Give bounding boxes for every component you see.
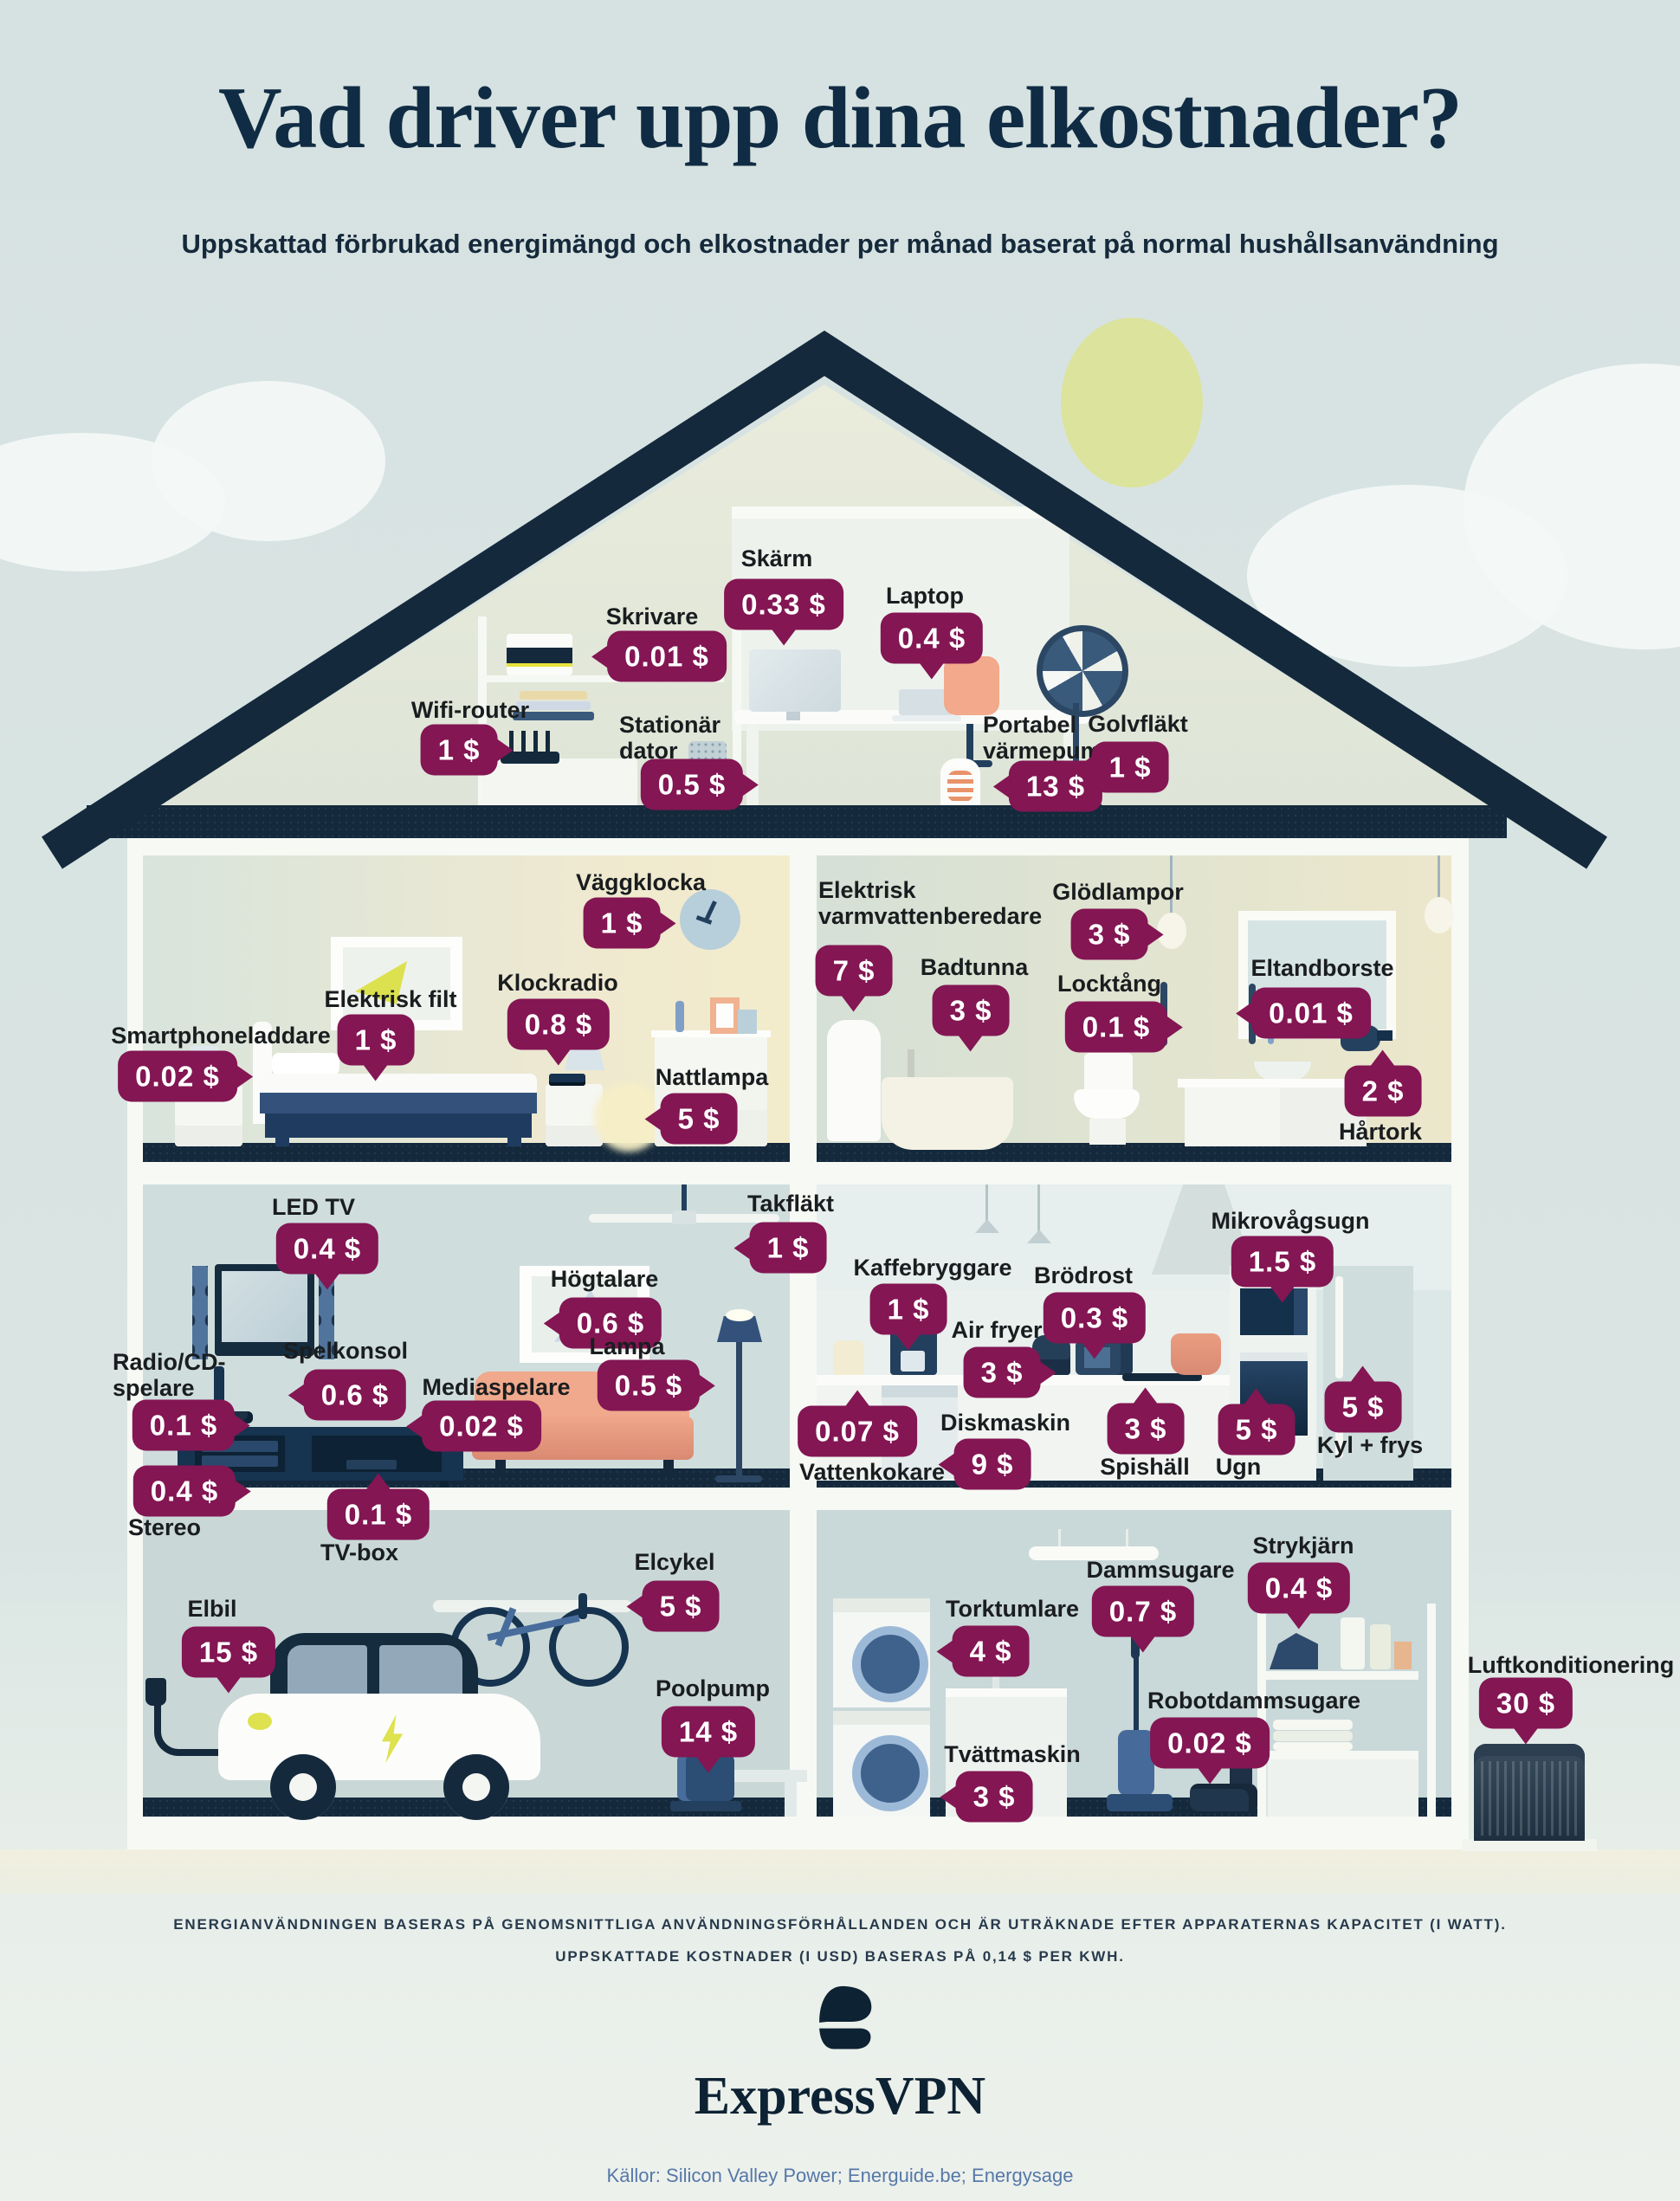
appliance-cost-badge-radio_cd_spelare: 0.1 $ xyxy=(132,1400,235,1451)
appliance-label-hogtalare: Högtalare xyxy=(551,1266,659,1292)
appliance-label-eltandborste: Eltandborste xyxy=(1250,955,1393,981)
sources-line: Källor: Silicon Valley Power; Energuide.… xyxy=(0,2165,1680,2187)
appliance-label-takflakt: Takfläkt xyxy=(747,1191,834,1217)
appliance-cost-badge-smartphoneladdare: 0.02 $ xyxy=(118,1051,237,1102)
appliance-cost-badge-laptop: 0.4 $ xyxy=(881,613,983,664)
appliance-cost-value: 3 $ xyxy=(950,995,992,1027)
appliance-label-stereo: Stereo xyxy=(128,1514,201,1540)
appliance-label-kaffebryggare: Kaffebryggare xyxy=(853,1255,1011,1281)
appliance-label-ugn: Ugn xyxy=(1216,1454,1261,1480)
appliance-label-diskmaskin: Diskmaskin xyxy=(940,1410,1070,1436)
appliance-cost-value: 0.6 $ xyxy=(321,1379,389,1411)
appliance-cost-badge-stereo: 0.4 $ xyxy=(133,1466,236,1517)
appliance-label-poolpump: Poolpump xyxy=(656,1675,770,1701)
appliance-label-led_tv: LED TV xyxy=(272,1194,355,1220)
appliance-cost-value: 1 $ xyxy=(355,1024,397,1056)
appliance-cost-badge-mikrovagsugn: 1.5 $ xyxy=(1231,1236,1334,1288)
badge-pointer xyxy=(591,644,609,668)
appliance-cost-value: 0.1 $ xyxy=(345,1499,412,1531)
badge-pointer xyxy=(645,1107,662,1131)
appliance-cost-value: 7 $ xyxy=(833,955,876,987)
appliance-cost-badge-tv_box: 0.1 $ xyxy=(327,1489,430,1540)
appliance-cost-value: 4 $ xyxy=(970,1636,1012,1668)
expressvpn-logo-icon xyxy=(798,1985,882,2059)
appliance-cost-value: 0.4 $ xyxy=(151,1475,218,1507)
appliance-cost-badge-diskmaskin: 9 $ xyxy=(954,1439,1031,1490)
appliance-cost-badge-poolpump: 14 $ xyxy=(662,1707,755,1758)
appliance-label-elektrisk_filt: Elektrisk filt xyxy=(324,986,456,1012)
appliance-label-skrivare: Skrivare xyxy=(606,603,699,629)
appliance-label-robotdammsugare: Robotdammsugare xyxy=(1147,1688,1360,1714)
badge-pointer xyxy=(544,1311,561,1335)
appliance-cost-badge-stationar_dator: 0.5 $ xyxy=(641,759,743,810)
badge-pointer xyxy=(919,662,945,680)
appliance-label-vattenkokare: Vattenkokare xyxy=(799,1459,945,1485)
badge-pointer xyxy=(1286,1612,1312,1630)
appliance-cost-value: 1 $ xyxy=(767,1232,810,1264)
appliance-cost-value: 0.4 $ xyxy=(294,1233,361,1265)
appliance-cost-value: 5 $ xyxy=(660,1591,702,1623)
appliance-cost-badge-robotdammsugare: 0.02 $ xyxy=(1150,1718,1270,1769)
appliance-cost-badge-spelkonsol: 0.6 $ xyxy=(304,1370,406,1421)
appliance-cost-value: 3 $ xyxy=(1125,1413,1167,1445)
appliance-label-golvflakt: Golvfläkt xyxy=(1088,711,1188,737)
appliance-cost-badge-skarm: 0.33 $ xyxy=(724,579,843,630)
appliance-cost-badge-kaffebryggare: 1 $ xyxy=(870,1284,947,1335)
badge-pointer xyxy=(363,1064,389,1081)
appliance-cost-value: 0.02 $ xyxy=(439,1410,524,1443)
appliance-cost-value: 0.7 $ xyxy=(1109,1596,1177,1628)
badge-pointer xyxy=(495,738,513,762)
appliance-cost-badge-elbil: 15 $ xyxy=(182,1627,275,1678)
badge-pointer xyxy=(1236,1001,1253,1025)
badge-pointer xyxy=(1076,755,1094,779)
appliance-cost-value: 0.3 $ xyxy=(1061,1302,1128,1334)
badge-pointer xyxy=(895,1333,921,1351)
appliance-cost-value: 0.02 $ xyxy=(135,1061,220,1093)
appliance-cost-badge-vattenkokare: 0.07 $ xyxy=(798,1406,917,1457)
appliance-label-skarm: Skärm xyxy=(741,545,813,571)
badge-pointer xyxy=(288,1383,306,1407)
badge-pointer xyxy=(234,1479,251,1503)
appliance-cost-badge-luftkonditionering: 30 $ xyxy=(1479,1678,1573,1729)
appliance-cost-value: 0.5 $ xyxy=(658,769,726,801)
badge-pointer xyxy=(698,1373,715,1397)
appliance-cost-value: 3 $ xyxy=(1089,919,1131,951)
appliance-label-smartphoneladdare: Smartphoneladdare xyxy=(111,1023,331,1049)
appliance-cost-value: 5 $ xyxy=(678,1103,720,1135)
appliance-cost-badge-lampa: 0.5 $ xyxy=(598,1360,700,1411)
appliance-cost-value: 0.1 $ xyxy=(150,1410,217,1442)
badge-pointer xyxy=(734,1236,752,1260)
appliance-cost-badge-nattlampa: 5 $ xyxy=(661,1094,738,1145)
appliance-label-laptop: Laptop xyxy=(886,583,964,609)
appliance-label-badtunna: Badtunna xyxy=(921,954,1029,980)
appliance-cost-value: 3 $ xyxy=(981,1357,1024,1389)
appliance-cost-value: 1 $ xyxy=(1109,752,1152,784)
badge-pointer xyxy=(1038,1360,1056,1384)
badge-pointer xyxy=(1166,1015,1183,1039)
badge-pointer xyxy=(1244,1389,1270,1406)
badge-pointer xyxy=(1197,1767,1223,1785)
badge-pointer xyxy=(695,1756,721,1773)
appliance-label-air_fryer: Air fryer xyxy=(951,1317,1042,1343)
badge-pointer xyxy=(546,1049,572,1066)
badge-pointer xyxy=(939,1452,956,1476)
footer-disclaimer: ENERGIANVÄNDNINGEN BASERAS PÅ GENOMSNITT… xyxy=(165,1908,1515,1972)
appliance-label-luftkonditionering: Luftkonditionering xyxy=(1468,1652,1674,1678)
appliance-cost-badge-mediaspelare: 0.02 $ xyxy=(422,1401,541,1452)
appliance-label-tv_box: TV-box xyxy=(320,1539,398,1565)
badge-pointer xyxy=(1350,1366,1376,1384)
appliance-cost-badge-wifi_router: 1 $ xyxy=(421,725,498,776)
appliance-label-mediaspelare: Mediaspelare xyxy=(422,1374,570,1400)
appliance-cost-value: 5 $ xyxy=(1342,1391,1385,1423)
appliance-cost-value: 9 $ xyxy=(972,1449,1014,1481)
appliance-label-strykjarn: Strykjärn xyxy=(1252,1533,1354,1559)
badge-pointer xyxy=(1146,922,1163,946)
appliance-label-glodlampor: Glödlampor xyxy=(1052,879,1184,905)
badge-pointer xyxy=(1513,1727,1539,1745)
appliance-cost-badge-torktumlare: 4 $ xyxy=(953,1626,1030,1677)
appliance-cost-value: 0.8 $ xyxy=(525,1009,592,1041)
appliance-label-kyl_frys: Kyl + frys xyxy=(1317,1432,1423,1458)
badge-pointer xyxy=(844,1391,870,1408)
appliance-cost-badge-klockradio: 0.8 $ xyxy=(507,999,610,1050)
appliance-cost-badge-badtunna: 3 $ xyxy=(933,985,1010,1036)
appliance-cost-value: 0.4 $ xyxy=(1265,1572,1333,1604)
appliance-cost-badge-elektrisk_varmvattenberedare: 7 $ xyxy=(816,946,893,997)
appliance-label-spelkonsol: Spelkonsol xyxy=(283,1338,408,1364)
appliance-cost-badge-led_tv: 0.4 $ xyxy=(276,1223,378,1275)
appliance-cost-badge-brodrost: 0.3 $ xyxy=(1044,1293,1146,1344)
appliance-label-spishall: Spishäll xyxy=(1100,1454,1190,1480)
badge-pointer xyxy=(406,1414,423,1438)
badge-pointer xyxy=(314,1273,340,1290)
appliance-cost-badge-golvflakt: 1 $ xyxy=(1092,742,1169,793)
appliance-cost-badge-hartork: 2 $ xyxy=(1345,1066,1422,1117)
appliance-cost-value: 30 $ xyxy=(1496,1688,1555,1720)
badge-pointer xyxy=(658,911,675,935)
appliance-cost-value: 0.4 $ xyxy=(898,623,966,655)
appliance-label-brodrost: Brödrost xyxy=(1034,1262,1133,1288)
appliance-label-locktang: Locktång xyxy=(1057,971,1161,997)
appliance-cost-badge-elcykel: 5 $ xyxy=(643,1581,720,1632)
appliance-cost-value: 5 $ xyxy=(1236,1414,1278,1446)
appliance-cost-value: 1 $ xyxy=(438,734,481,766)
appliance-label-elbil: Elbil xyxy=(187,1596,236,1622)
appliance-cost-value: 0.02 $ xyxy=(1167,1727,1252,1759)
badge-pointer xyxy=(216,1676,242,1694)
appliance-cost-badge-tvattmaskin: 3 $ xyxy=(956,1772,1033,1823)
appliance-cost-badge-takflakt: 1 $ xyxy=(750,1223,827,1274)
badge-pointer xyxy=(993,774,1011,798)
appliance-cost-badge-ugn: 5 $ xyxy=(1218,1404,1296,1455)
appliance-label-dammsugare: Dammsugare xyxy=(1086,1557,1234,1583)
expressvpn-wordmark: ExpressVPN xyxy=(0,2066,1680,2127)
appliance-label-lampa: Lampa xyxy=(589,1333,664,1359)
appliance-label-tvattmaskin: Tvättmaskin xyxy=(944,1741,1081,1767)
appliance-label-mikrovagsugn: Mikrovågsugn xyxy=(1211,1208,1369,1234)
appliance-cost-value: 0.1 $ xyxy=(1082,1011,1150,1043)
badge-pointer xyxy=(958,1035,984,1052)
appliance-cost-value: 15 $ xyxy=(199,1636,258,1668)
appliance-label-elcykel: Elcykel xyxy=(634,1549,714,1575)
appliance-label-stationar_dator: Stationär dator xyxy=(619,712,749,764)
badge-pointer xyxy=(1370,1050,1396,1068)
appliance-cost-badge-strykjarn: 0.4 $ xyxy=(1248,1563,1350,1614)
appliance-cost-badge-locktang: 0.1 $ xyxy=(1065,1002,1167,1053)
appliance-cost-badge-skrivare: 0.01 $ xyxy=(607,631,727,682)
badge-pointer xyxy=(1130,1636,1156,1653)
appliance-cost-value: 0.33 $ xyxy=(741,589,826,621)
appliance-label-wifi_router: Wifi-router xyxy=(411,697,529,723)
appliance-label-klockradio: Klockradio xyxy=(497,970,618,996)
appliance-cost-value: 1.5 $ xyxy=(1249,1246,1316,1278)
appliance-cost-badge-kyl_frys: 5 $ xyxy=(1325,1382,1402,1433)
badge-pointer xyxy=(236,1064,253,1088)
appliance-cost-value: 0.5 $ xyxy=(615,1370,682,1402)
appliance-label-hartork: Hårtork xyxy=(1339,1119,1422,1145)
appliance-cost-badge-elektrisk_filt: 1 $ xyxy=(338,1015,415,1066)
appliance-cost-value: 1 $ xyxy=(888,1294,930,1326)
appliance-label-nattlampa: Nattlampa xyxy=(656,1064,769,1090)
appliance-cost-badge-vaggklocka: 1 $ xyxy=(584,898,661,949)
appliance-cost-badge-spishall: 3 $ xyxy=(1108,1404,1185,1455)
appliance-cost-value: 14 $ xyxy=(679,1716,738,1748)
appliance-label-elektrisk_varmvattenberedare: Elektrisk varmvattenberedare xyxy=(818,877,1069,929)
appliance-label-vaggklocka: Väggklocka xyxy=(576,869,706,895)
badge-pointer xyxy=(741,772,759,797)
appliance-cost-value: 0.01 $ xyxy=(1269,997,1354,1029)
appliance-cost-value: 0.07 $ xyxy=(815,1416,900,1448)
appliance-cost-value: 0.01 $ xyxy=(624,641,709,673)
badge-pointer xyxy=(233,1413,250,1437)
badge-pointer xyxy=(1082,1342,1108,1359)
appliance-cost-value: 3 $ xyxy=(973,1781,1016,1813)
appliance-label-radio_cd_spelare: Radio/CD-spelare xyxy=(113,1349,251,1401)
badge-pointer xyxy=(771,629,797,646)
appliance-label-torktumlare: Torktumlare xyxy=(946,1596,1079,1622)
badge-pointer xyxy=(1270,1286,1296,1303)
appliance-cost-value: 1 $ xyxy=(601,907,643,939)
badge-pointer xyxy=(365,1474,391,1491)
appliance-cost-value: 2 $ xyxy=(1362,1075,1405,1107)
badge-pointer xyxy=(841,995,867,1012)
appliance-cost-badge-eltandborste: 0.01 $ xyxy=(1251,988,1371,1039)
appliance-cost-badge-glodlampor: 3 $ xyxy=(1071,909,1148,960)
badge-pointer xyxy=(937,1639,954,1663)
appliance-cost-badge-air_fryer: 3 $ xyxy=(964,1347,1041,1398)
badge-pointer xyxy=(1133,1388,1159,1405)
badge-pointer xyxy=(940,1785,958,1809)
badge-pointer xyxy=(627,1594,644,1618)
callout-layer: Skärm0.33 $Skrivare0.01 $Laptop0.4 $Wifi… xyxy=(0,0,1680,2201)
infographic-canvas: Vad driver upp dina elkostnader? Uppskat… xyxy=(0,0,1680,2201)
appliance-cost-badge-dammsugare: 0.7 $ xyxy=(1092,1586,1194,1637)
